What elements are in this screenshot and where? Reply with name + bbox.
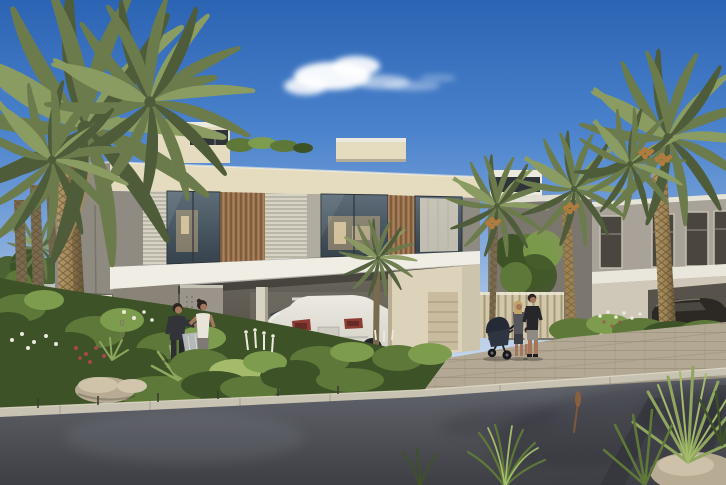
gatepost-number: 00: [113, 319, 127, 349]
window-glass-c: [415, 196, 462, 254]
roof-box-b: [336, 138, 406, 162]
scene-canvas: [0, 0, 726, 485]
window-glass-a: [167, 191, 220, 264]
concrete-column: [307, 194, 321, 258]
rendered-photo: 00: [0, 0, 726, 485]
